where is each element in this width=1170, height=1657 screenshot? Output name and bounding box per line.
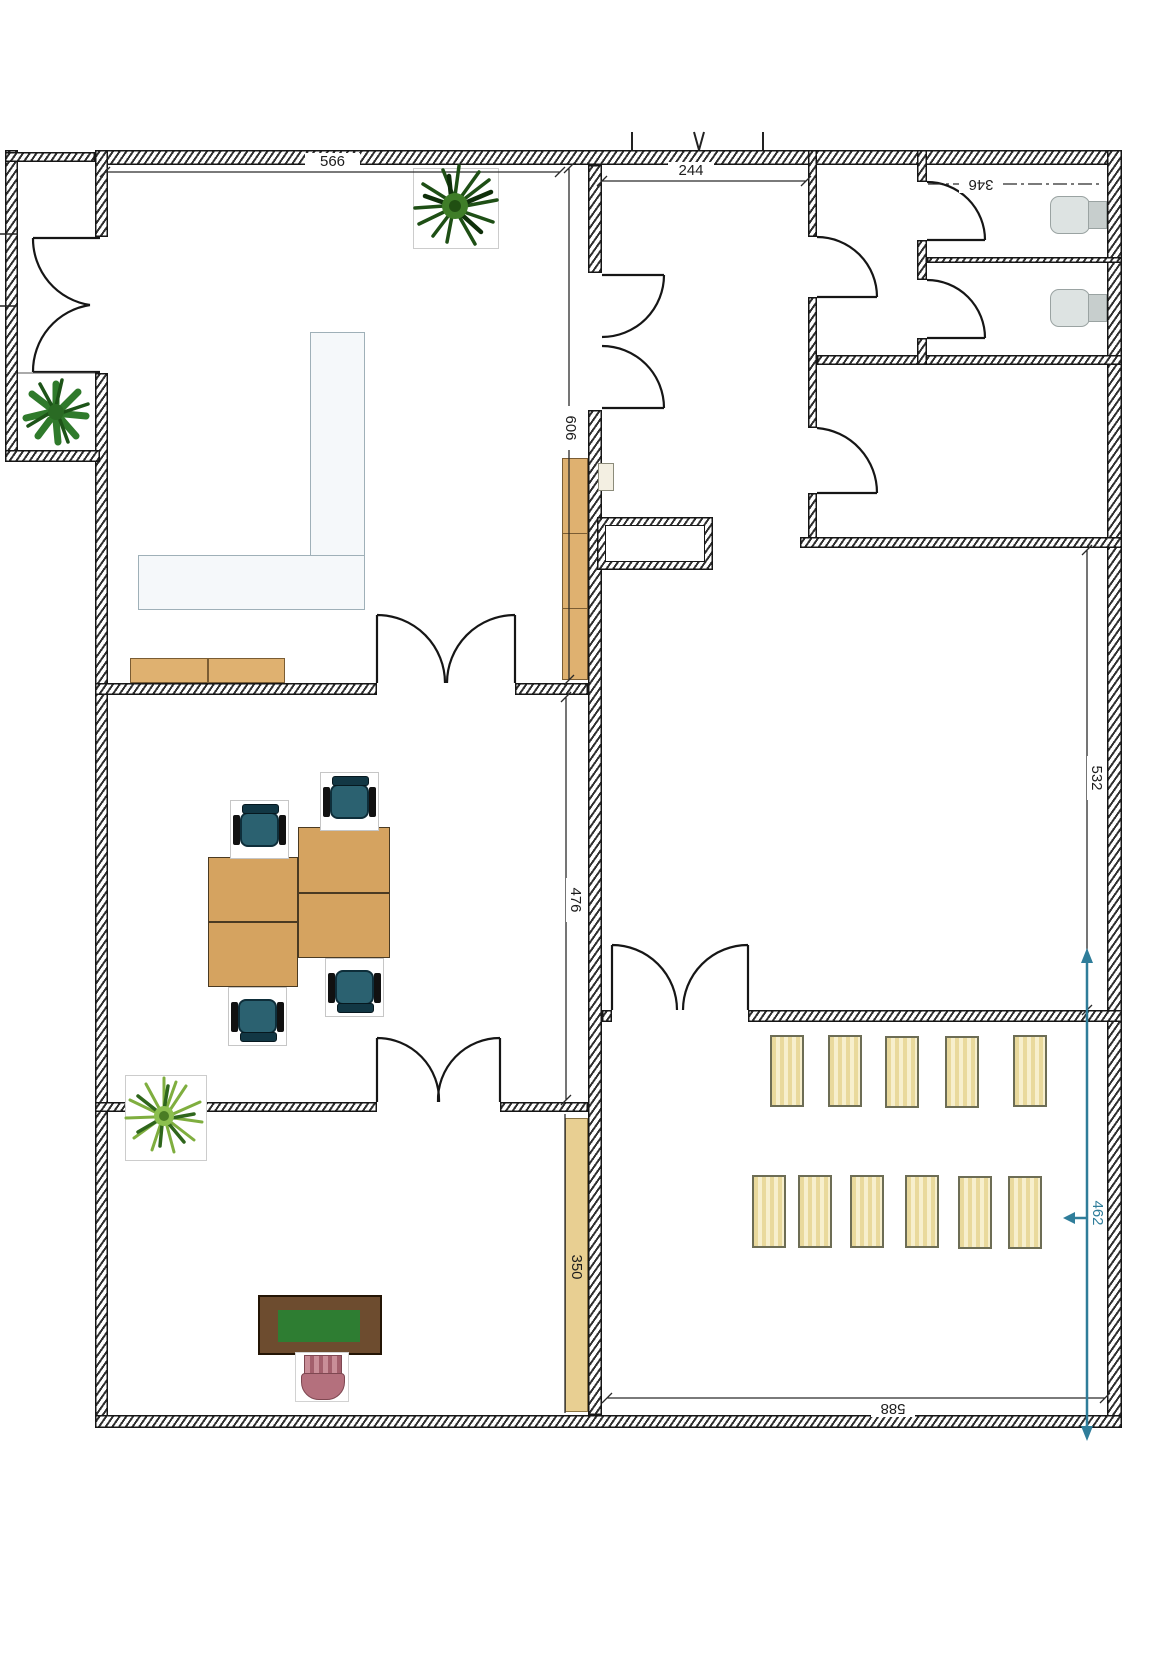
- double-door-entrance-top: [33, 238, 100, 305]
- dim-label-532: 532: [1087, 756, 1105, 800]
- porch-window-tick-icon: [0, 234, 18, 306]
- double-door-grouproom-right: [438, 1038, 500, 1102]
- plant-leafy-icon: [26, 380, 88, 442]
- floorplan-linework: [0, 0, 1170, 1657]
- dimension-lines: [100, 163, 1110, 1413]
- double-door-corridor-top: [602, 275, 664, 337]
- arrow-left-icon: [1063, 1212, 1075, 1224]
- dim-label-588: 588: [871, 1399, 915, 1417]
- plant-spiky-icon: [415, 166, 497, 244]
- plant-center-dark: [159, 1111, 169, 1121]
- double-door-grouproom-left: [377, 1038, 439, 1102]
- double-door-corridor-bottom: [602, 346, 664, 408]
- door-store: [817, 428, 877, 493]
- double-door-dorm-left: [612, 945, 677, 1010]
- door-symbols: [33, 182, 985, 1102]
- plant-palm-icon: [126, 1078, 202, 1152]
- dim-label-606: 606: [561, 406, 579, 450]
- floor-plan: 566 244 346 606 476 532 350 462 588: [0, 0, 1170, 1657]
- double-door-classroom-right: [447, 615, 515, 683]
- dim-label-476: 476: [566, 878, 584, 922]
- window-tick-icon: [694, 132, 704, 150]
- dim-label-462: 462: [1088, 1191, 1106, 1235]
- plant-center: [48, 404, 64, 420]
- door-vestibule: [817, 237, 877, 297]
- dim-label-350: 350: [567, 1245, 585, 1289]
- window-ticks: [0, 132, 763, 373]
- double-door-entrance-bottom: [33, 305, 100, 372]
- double-door-classroom-left: [377, 615, 445, 683]
- dim-label-566: 566: [305, 153, 360, 171]
- dim-line-588: [602, 1393, 1110, 1403]
- arrow-up-icon: [1081, 948, 1093, 963]
- dim-label-244: 244: [668, 162, 714, 180]
- dim-label-346: 346: [959, 175, 1003, 193]
- double-door-dorm-right: [683, 945, 748, 1010]
- plant-center-dark: [449, 200, 461, 212]
- arrow-down-icon: [1081, 1426, 1093, 1441]
- door-toilet-2: [927, 280, 985, 338]
